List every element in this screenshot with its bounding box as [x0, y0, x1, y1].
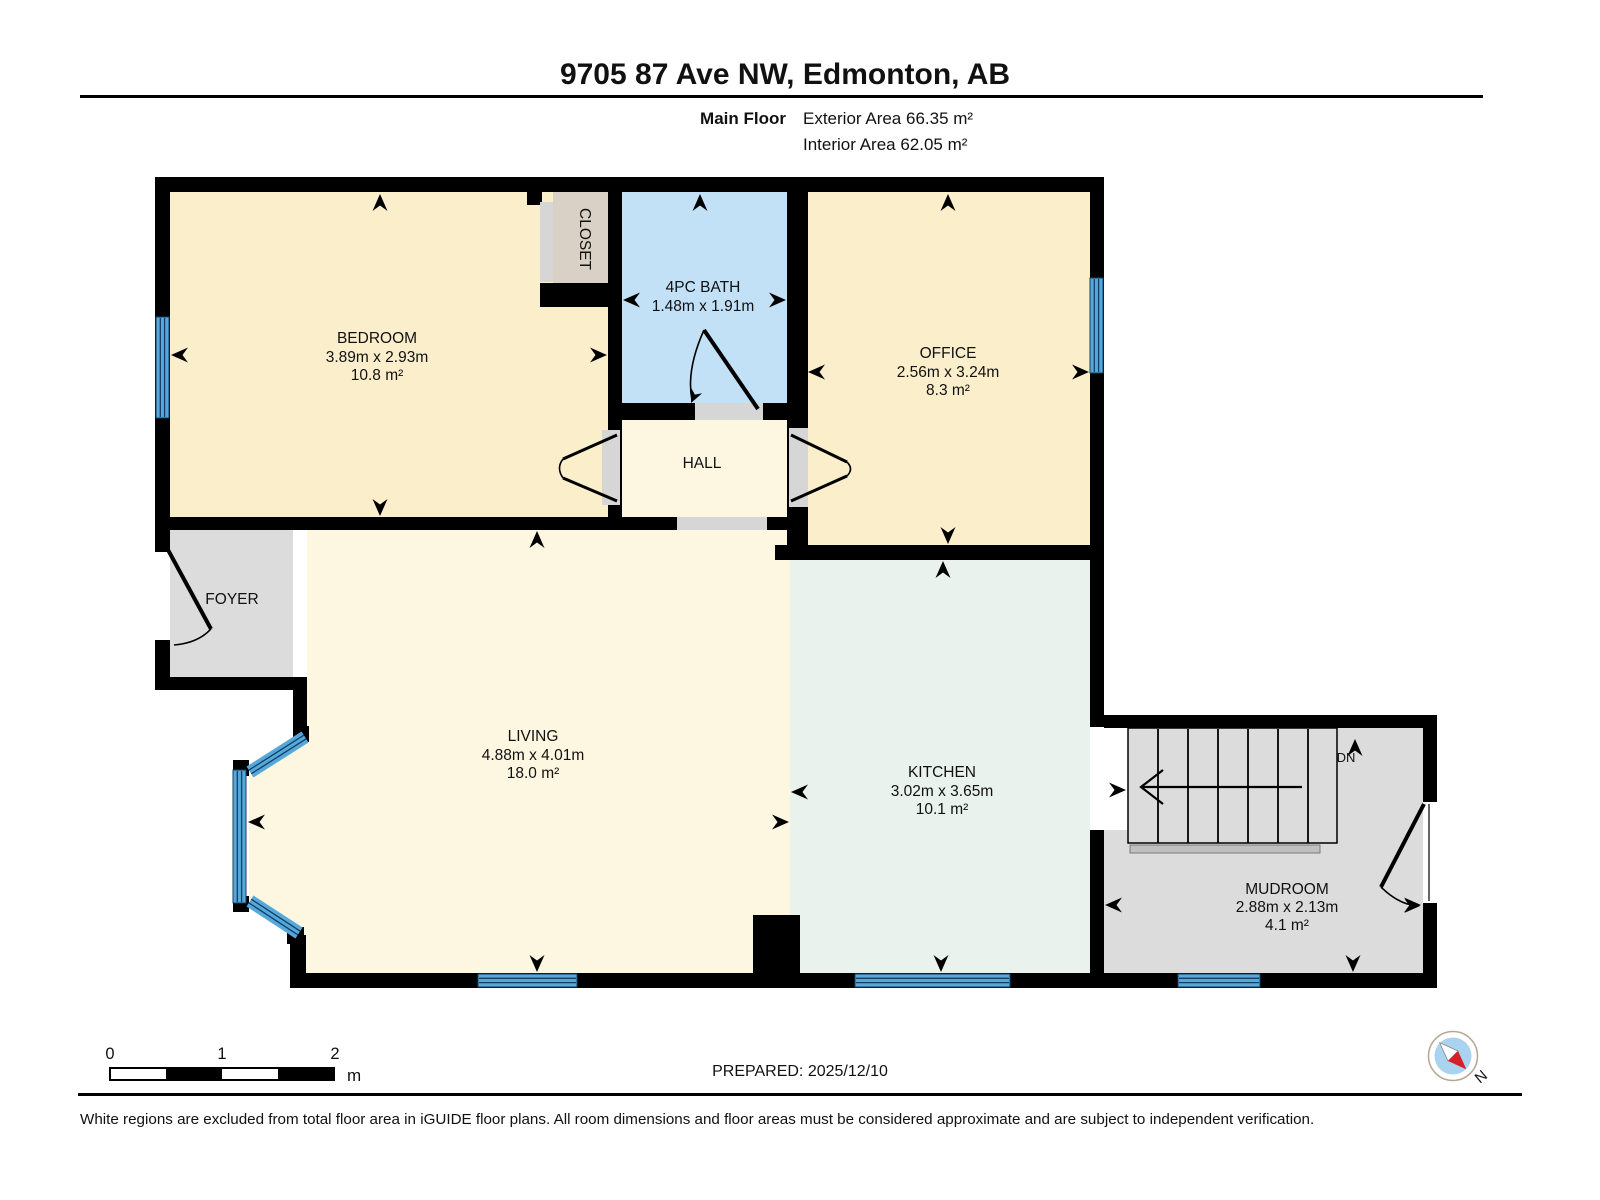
mudroom-name: MUDROOM [1245, 881, 1329, 898]
mudroom-door-opening [1423, 802, 1437, 903]
kitchen-dims: 3.02m x 3.65m [891, 783, 994, 800]
hall-living-opening [677, 517, 767, 530]
foyer-name: FOYER [205, 591, 258, 608]
bedroom-dims: 3.89m x 2.93m [326, 349, 429, 366]
footer: White regions are excluded from total fl… [78, 1093, 1522, 1128]
bedroom-name: BEDROOM [337, 330, 417, 347]
prepared-date: PREPARED: 2025/12/10 [712, 1063, 888, 1080]
page-title: 9705 87 Ave NW, Edmonton, AB [560, 58, 1010, 91]
stairs: DN [1128, 728, 1355, 853]
interior-area: Interior Area 62.05 m² [803, 135, 968, 154]
bath-door-opening [695, 403, 763, 420]
header-divider [80, 95, 1483, 98]
stair-passage [1104, 728, 1128, 830]
office-window [1090, 278, 1103, 373]
scale-bar-seg1 [166, 1068, 222, 1080]
hall-name: HALL [683, 455, 722, 472]
disclaimer-text: White regions are excluded from total fl… [80, 1111, 1314, 1128]
mudroom-window [1178, 974, 1260, 987]
bay-window-middle [233, 770, 246, 903]
compass: N [1429, 1032, 1491, 1088]
living-bottom-window [478, 974, 577, 987]
mudroom-dims: 2.88m x 2.13m [1236, 899, 1339, 916]
stair-area [1128, 728, 1337, 843]
scale-tick-0: 0 [105, 1045, 114, 1063]
closet-name: CLOSET [576, 208, 593, 271]
scale-unit: m [347, 1066, 361, 1085]
bath-dims: 1.48m x 1.91m [652, 298, 755, 315]
bedroom-window [156, 317, 169, 418]
foyer-entry-opening [155, 552, 170, 640]
scale-bar: 0 1 2 m [105, 1045, 361, 1085]
kitchen-area: 10.1 m² [916, 801, 969, 818]
floor-label: Main Floor [700, 109, 786, 128]
office-name: OFFICE [920, 345, 977, 362]
living-area: 18.0 m² [507, 765, 560, 782]
living-dims: 4.88m x 4.01m [482, 747, 585, 764]
mudroom-area: 4.1 m² [1265, 917, 1309, 934]
scale-tick-1: 1 [217, 1045, 226, 1063]
floor-plan: 9705 87 Ave NW, Edmonton, AB Main Floor … [0, 0, 1600, 1200]
closet-opening [540, 202, 553, 282]
kitchen-passage-opening [1090, 727, 1104, 830]
scale-bar-seg2 [278, 1068, 334, 1080]
stair-landing-edge [1130, 845, 1320, 853]
compass-north-label: N [1472, 1067, 1491, 1087]
office-area: 8.3 m² [926, 382, 970, 399]
floor-plan-page: 9705 87 Ave NW, Edmonton, AB Main Floor … [0, 0, 1600, 1200]
living-name: LIVING [508, 728, 559, 745]
exterior-area: Exterior Area 66.35 m² [803, 109, 973, 128]
kitchen-window [855, 974, 1010, 987]
office-dims: 2.56m x 3.24m [897, 364, 1000, 381]
footer-divider [78, 1093, 1522, 1096]
kitchen-name: KITCHEN [908, 764, 976, 781]
bath-name: 4PC BATH [666, 279, 741, 296]
header: 9705 87 Ave NW, Edmonton, AB Main Floor … [80, 58, 1483, 154]
scale-tick-2: 2 [330, 1045, 339, 1063]
room-hall [608, 420, 790, 530]
bedroom-area: 10.8 m² [351, 367, 404, 384]
